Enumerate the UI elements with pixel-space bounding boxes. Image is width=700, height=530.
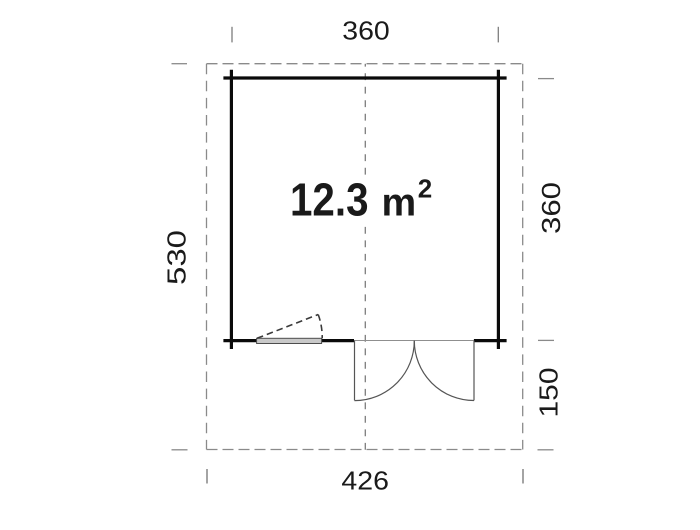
svg-text:m: m [382,182,417,225]
svg-text:426: 426 [341,466,389,496]
svg-text:2: 2 [418,174,432,204]
svg-text:530: 530 [162,230,192,285]
svg-text:12.3: 12.3 [290,174,369,226]
svg-text:360: 360 [342,15,390,45]
svg-text:150: 150 [534,368,564,418]
svg-text:360: 360 [536,182,566,234]
